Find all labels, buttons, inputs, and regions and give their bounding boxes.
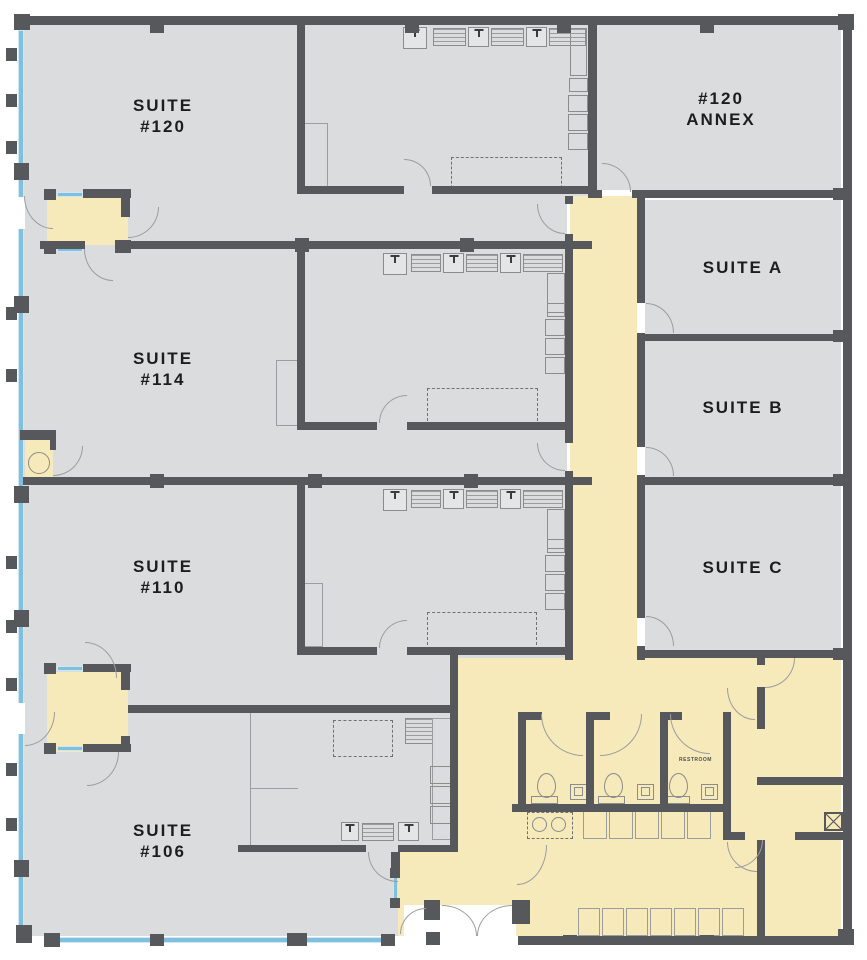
cabinet-box [430, 806, 451, 824]
closet-outline [303, 123, 328, 194]
column-post [14, 860, 29, 877]
vestibule-south [47, 672, 128, 752]
toilet-tank [531, 796, 558, 804]
counter-hatch [433, 28, 466, 46]
wall [297, 647, 377, 655]
lab-sink-icon [526, 27, 547, 47]
wall [16, 16, 852, 25]
cabinet-box [545, 574, 565, 591]
lab-sink-icon [500, 253, 521, 273]
column-post [700, 25, 714, 33]
column-post [381, 934, 395, 946]
lab-sink-icon [341, 822, 359, 841]
wall [637, 333, 645, 447]
wall [297, 249, 305, 429]
window-strip [57, 192, 83, 197]
locker-square [602, 908, 624, 936]
wall [637, 196, 645, 303]
wall [238, 845, 366, 852]
counter-hatch [411, 490, 441, 508]
column-tab [6, 678, 17, 691]
lab-sink-icon [443, 253, 464, 273]
wall [795, 832, 843, 840]
wall [526, 712, 542, 720]
floor-plan: SUITE #120 SUITE #114 SUITE #110 SUITE #… [0, 0, 867, 960]
column-tab [6, 620, 17, 633]
label-line: SUITE [83, 348, 243, 369]
counter-hatch [523, 490, 563, 508]
corner-block [16, 925, 32, 943]
counter-hatch [491, 28, 524, 46]
column-post [390, 898, 400, 908]
wash-basin-icon [551, 817, 566, 832]
wall [757, 777, 843, 785]
column-post [44, 933, 60, 947]
lab-sink-icon [468, 27, 489, 47]
counter-hatch [405, 718, 433, 744]
dashed-island [333, 720, 393, 757]
column-post [464, 474, 478, 488]
wall [121, 736, 130, 752]
column-post [557, 25, 571, 33]
room-label-suite-114: SUITE #114 [83, 348, 243, 390]
locker-square [578, 908, 600, 936]
dashed-island [427, 612, 537, 650]
column-tab [6, 94, 17, 107]
wall [632, 190, 843, 198]
lab-sink-icon [383, 489, 407, 511]
locker-square [687, 810, 711, 839]
cabinet-box [430, 786, 451, 804]
window-strip [52, 937, 394, 943]
wall [297, 186, 404, 194]
lab-sink-icon [383, 253, 407, 275]
room-label-suite-110: SUITE #110 [83, 556, 243, 598]
cabinet-box [568, 95, 588, 112]
shaft-x-icon [824, 812, 843, 831]
column-post [287, 933, 307, 946]
label-line: SUITE [83, 820, 243, 841]
column-tab [6, 369, 17, 382]
room-label-suite-c: SUITE C [663, 557, 823, 578]
cabinet-box [545, 319, 565, 336]
column-post [150, 934, 164, 946]
column-post [14, 486, 29, 503]
room-label-suite-b: SUITE B [663, 397, 823, 418]
label-line: #120 [641, 88, 801, 109]
sink-icon [570, 784, 587, 800]
label-line: #110 [83, 577, 243, 598]
cabinet-box [430, 766, 451, 784]
wall [660, 712, 668, 812]
room-label-suite-a: SUITE A [663, 257, 823, 278]
sink-icon [701, 784, 718, 800]
label-line: #106 [83, 841, 243, 862]
column-tab [6, 307, 17, 320]
locker-square [626, 908, 648, 936]
wall [843, 16, 852, 945]
column-post [460, 238, 474, 252]
counter-hatch [523, 254, 563, 272]
wall [637, 477, 843, 485]
cabinet-box [547, 303, 565, 317]
wall [637, 475, 645, 618]
column-post [44, 743, 56, 754]
room-label-restroom: RESTROOM [668, 757, 723, 763]
wall [20, 430, 56, 440]
door-opening [17, 703, 25, 734]
column-post [44, 243, 56, 254]
cabinet-box [545, 357, 565, 374]
corner-block [14, 14, 30, 30]
wall [407, 422, 567, 430]
column-tab [6, 141, 17, 154]
wash-basin-icon [532, 817, 547, 832]
corner-block [838, 929, 854, 945]
column-tab [6, 818, 17, 831]
lab-sink-icon [398, 822, 419, 841]
wall [297, 23, 305, 193]
wall [518, 712, 526, 812]
wall [407, 647, 567, 655]
column-post [405, 25, 419, 33]
wall [757, 655, 765, 665]
wall [586, 712, 594, 812]
wall [565, 234, 573, 443]
door-post [512, 900, 530, 924]
window-strip [57, 746, 83, 751]
toilet-icon [669, 773, 688, 798]
counter-hatch [466, 254, 498, 272]
locker-square [635, 810, 659, 839]
wall [432, 186, 592, 194]
wall [723, 712, 731, 840]
column-tab [6, 556, 17, 569]
dashed-island [427, 388, 538, 426]
wall [637, 650, 843, 658]
cabinet-box [568, 133, 588, 150]
toilet-tank [598, 796, 625, 804]
window-strip [57, 666, 83, 671]
room-label-suite-106: SUITE #106 [83, 820, 243, 862]
wall [450, 655, 458, 852]
locker-square [650, 908, 672, 936]
wall [723, 832, 745, 840]
partition-line [250, 788, 298, 789]
cabinet-box [547, 539, 565, 553]
locker-square [698, 908, 720, 936]
column-tab [6, 48, 17, 61]
sink-icon [637, 784, 654, 800]
wall [565, 196, 573, 204]
door-post [426, 932, 440, 945]
wall [398, 845, 450, 852]
column-post [700, 935, 714, 945]
column-post [115, 240, 131, 253]
locker-square [661, 810, 685, 839]
wall [121, 664, 130, 690]
locker-square [583, 810, 607, 839]
wall [128, 705, 458, 713]
label-line: #120 [83, 116, 243, 137]
door-post [424, 900, 440, 920]
cabinet-box [568, 114, 588, 131]
lab-sink-icon [500, 489, 521, 509]
counter-hatch [362, 823, 394, 841]
wall [512, 804, 730, 812]
wall [588, 190, 602, 198]
cabinet-run [570, 28, 587, 76]
label-line: ANNEX [641, 109, 801, 130]
room-label-suite-120: SUITE #120 [83, 95, 243, 137]
locker-square [609, 810, 633, 839]
toilet-icon [604, 773, 623, 798]
corner-block [838, 14, 854, 30]
column-post [44, 663, 56, 674]
corridor [570, 196, 637, 660]
column-post [150, 474, 164, 488]
locker-square [674, 908, 696, 936]
counter-hatch [411, 254, 441, 272]
label-line: SUITE [83, 556, 243, 577]
wall [588, 23, 597, 198]
lab-sink-icon [443, 489, 464, 509]
cabinet-box [545, 338, 565, 355]
cabinet-box [545, 555, 565, 572]
wall [637, 334, 843, 341]
toilet-icon [537, 773, 556, 798]
column-post [150, 25, 164, 33]
wall [115, 241, 592, 249]
floor-drain-icon [28, 452, 50, 474]
column-tab [6, 763, 17, 776]
column-post [563, 935, 577, 945]
wall [297, 485, 305, 650]
wall [297, 422, 377, 430]
wall [757, 687, 765, 729]
room-label-annex-120: #120 ANNEX [641, 88, 801, 130]
counter-hatch [466, 490, 498, 508]
label-line: SUITE [83, 95, 243, 116]
label-line: #114 [83, 369, 243, 390]
cabinet-box [545, 593, 565, 610]
column-post [308, 474, 322, 488]
vestibule-north [47, 196, 128, 245]
wall [565, 471, 573, 660]
column-post [14, 163, 29, 180]
cabinet-box [569, 78, 588, 92]
partition-line [250, 712, 251, 845]
locker-square [722, 908, 744, 936]
